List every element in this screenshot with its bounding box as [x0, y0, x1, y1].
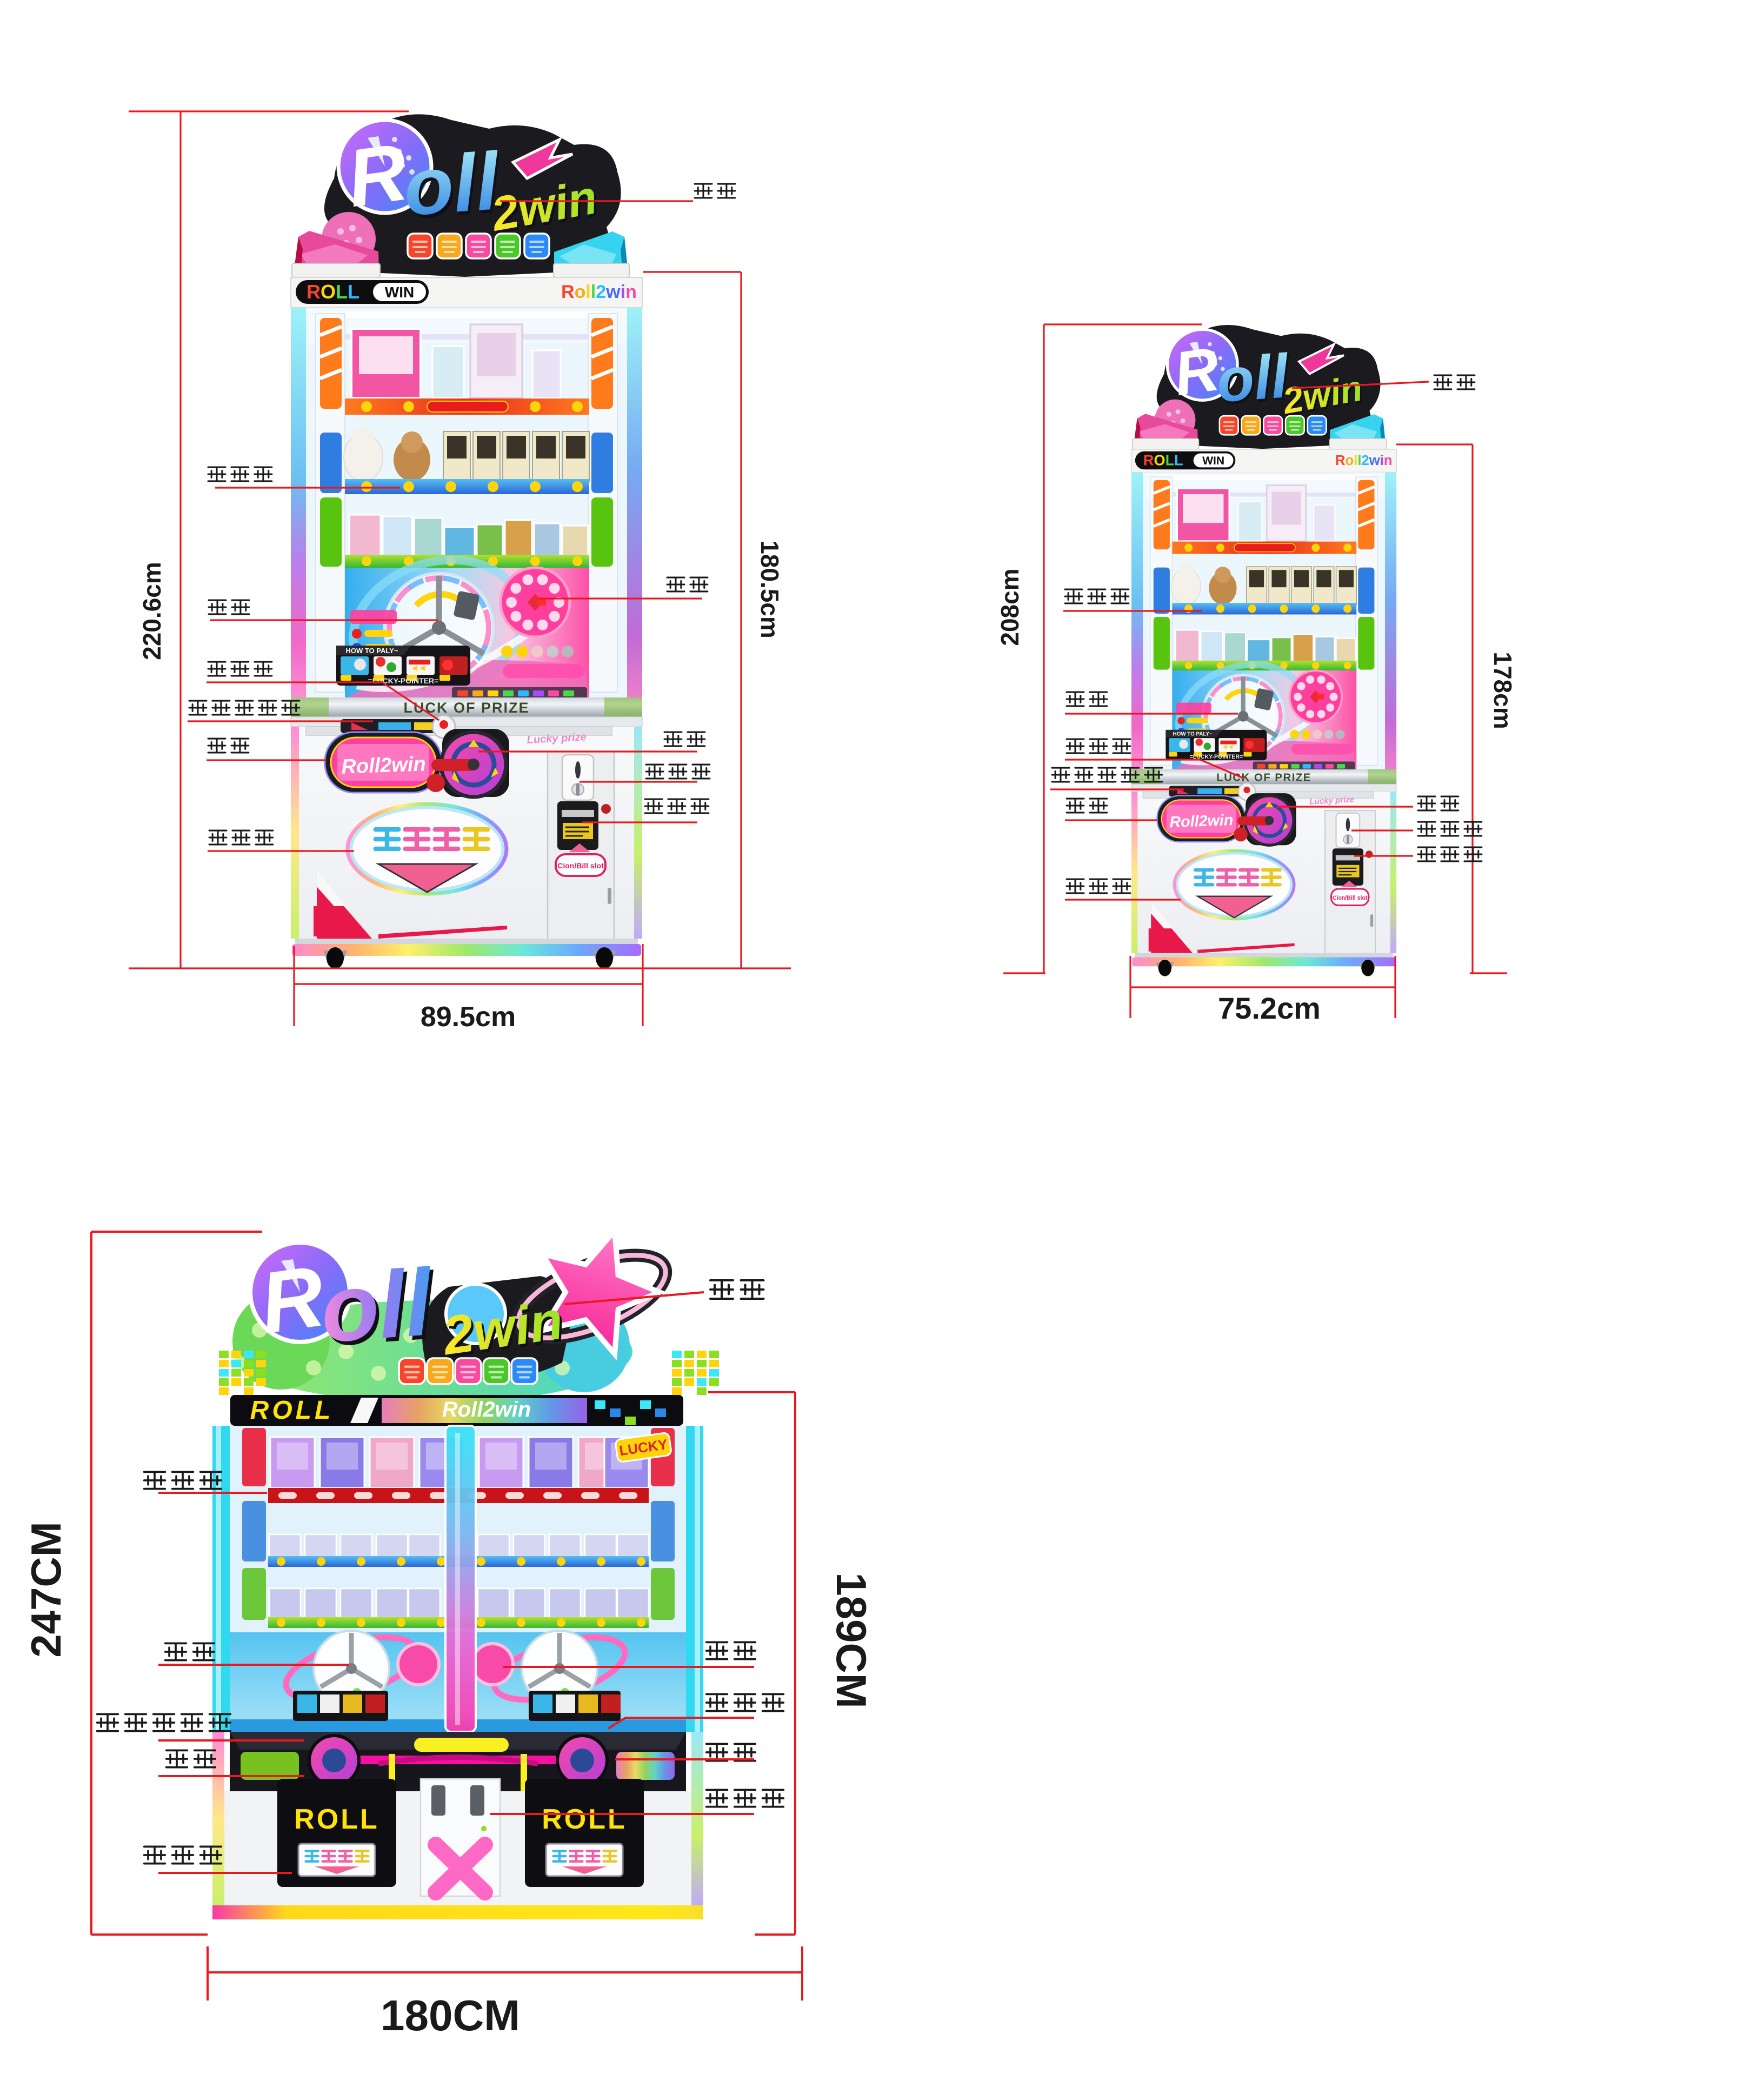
svg-text:Cion/Bill slot: Cion/Bill slot — [557, 861, 604, 870]
svg-text:180.5cm: 180.5cm — [756, 540, 784, 639]
svg-text:ROLL: ROLL — [542, 1804, 627, 1835]
svg-text:=LUCKY-POINTER=: =LUCKY-POINTER= — [368, 676, 439, 685]
svg-text:89.5cm: 89.5cm — [421, 1001, 516, 1033]
svg-text:LUCK OF PRIZE: LUCK OF PRIZE — [404, 700, 530, 716]
svg-text:oll: oll — [401, 135, 503, 232]
svg-text:R: R — [342, 126, 412, 224]
svg-text:ROLL: ROLL — [294, 1804, 379, 1835]
svg-text:oll: oll — [317, 1250, 437, 1363]
svg-text:HOW TO PALY~: HOW TO PALY~ — [346, 647, 398, 655]
svg-text:178cm: 178cm — [1489, 652, 1517, 729]
svg-text:Roll2win: Roll2win — [561, 282, 637, 302]
svg-text:WIN: WIN — [385, 284, 414, 301]
svg-text:ROLL: ROLL — [250, 1396, 334, 1425]
svg-text:189CM: 189CM — [828, 1572, 875, 1708]
svg-text:75.2cm: 75.2cm — [1218, 991, 1321, 1025]
svg-text:208cm: 208cm — [996, 568, 1024, 646]
svg-text:Roll2win: Roll2win — [341, 753, 427, 778]
svg-text:247CM: 247CM — [22, 1521, 70, 1657]
svg-text:Roll2win: Roll2win — [442, 1398, 531, 1421]
svg-text:220.6cm: 220.6cm — [138, 562, 166, 660]
svg-text:ROLL: ROLL — [307, 281, 359, 303]
svg-text:180CM: 180CM — [381, 1991, 520, 2039]
